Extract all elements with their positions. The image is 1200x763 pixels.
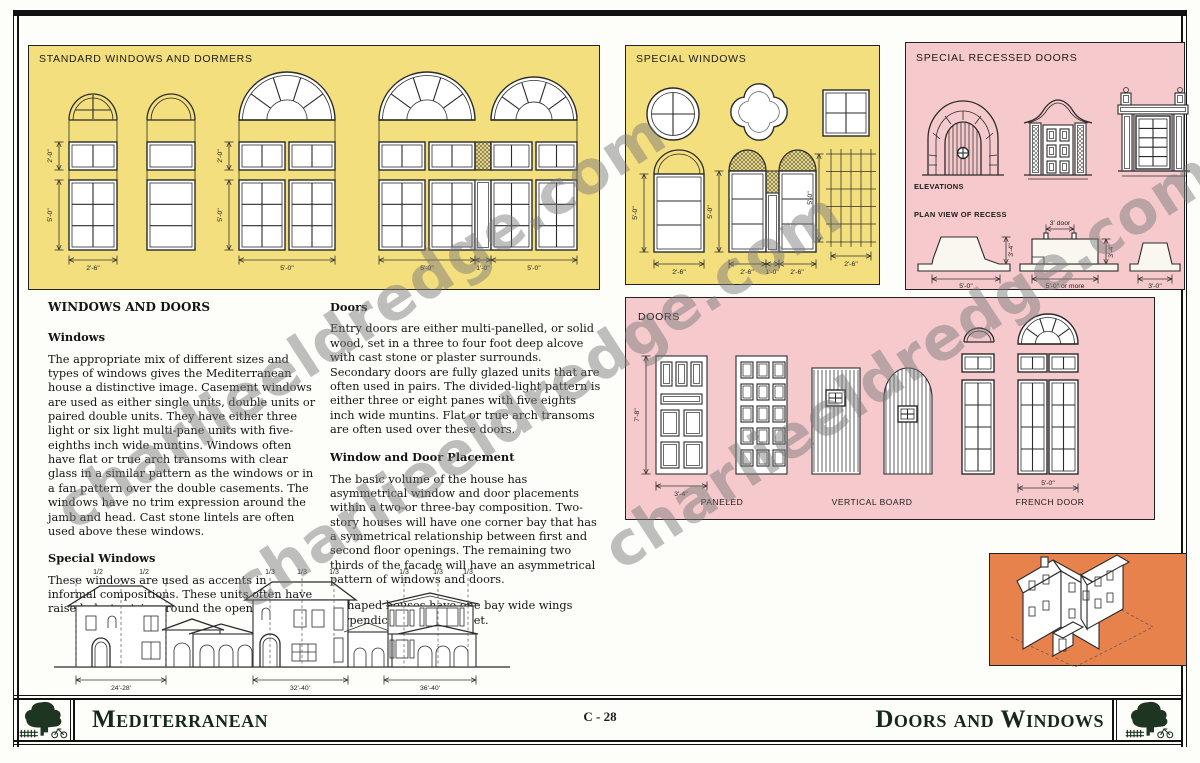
footer-rule [14,695,1182,696]
dim-label: 5'-0" [217,208,224,222]
dim-label: 5'-0" [707,205,714,219]
dim-label: 3' door [1050,220,1071,227]
footer-rule [14,744,1182,745]
page-title: Doors and Windows [875,700,1104,740]
quatrefoil-window [731,84,787,140]
dim-label: 2'-6" [740,269,754,276]
panel-title: SPECIAL WINDOWS [636,53,746,65]
pattern-book-page: STANDARD WINDOWS AND DORMERS 2'-0" 5'-0"… [0,0,1200,763]
rustic-arch-door-elevation [922,101,1004,175]
bay-fraction: 1/3 [265,569,275,576]
bay-fraction: 1/3 [463,569,473,576]
windows-heading: Windows [48,330,316,344]
bay-fraction: 1/2 [139,569,149,576]
bay-fraction: 1/3 [399,569,409,576]
double-french-door: 5'-0" [1018,314,1078,493]
dim-label: 3'-0" [1148,283,1162,290]
axonometric-house-drawing [995,515,1175,667]
page-top-rule [14,10,1186,16]
doors-paragraph: Entry doors are either multi-panelled, o… [330,322,604,437]
dim-label: 2'-6" [86,265,100,272]
width-dim: 36'-40' [420,685,440,692]
dim-label: 2'-6" [672,269,686,276]
arched-three-light-window: 5'-0" 2'-6" [632,150,704,276]
elevations-label: ELEVATIONS [914,182,964,191]
dim-label: 5'-0" or more [1046,283,1085,290]
vertical-board-door [812,368,860,474]
article-heading: WINDOWS AND DOORS [48,300,316,315]
facade-elevations-diagram: 1/2 1/2 24'-28' [48,562,518,694]
bay-fraction: 1/3 [297,569,307,576]
window-fan-double-casement: 2'-0" 5'-0" 5'-0" [217,72,335,272]
plan-view-label: PLAN VIEW OF RECESS [914,210,1007,219]
dim-label: 5'-0" [280,265,294,272]
dim-label: 5'-0" [959,283,973,290]
dim-label: 5'-0" [632,206,639,220]
doors-panel: DOORS 7'-8" 3'-4" PANELED [625,297,1155,520]
special-recessed-doors-panel: SPECIAL RECESSED DOORS [905,42,1185,290]
dim-label: 2'-6" [790,269,804,276]
page-left-frame [13,10,19,747]
paneled-label: PANELED [701,497,744,507]
panel-title: DOORS [638,311,680,323]
dim-label: 7'-8" [634,408,641,422]
windows-paragraph: The appropriate mix of different sizes a… [48,353,316,539]
french-door-label: FRENCH DOOR [1016,497,1085,507]
window-arched-three-light: 2'-0" 5'-0" 2'-6" [47,94,117,272]
standard-windows-diagram: STANDARD WINDOWS AND DORMERS 2'-0" 5'-0"… [29,46,599,289]
recessed-doors-diagram: SPECIAL RECESSED DOORS [906,43,1184,289]
dim-label: 5'-0" [807,191,814,205]
bay-fraction: 1/3 [433,569,443,576]
recess-plan-narrow: 3'-0" [1130,243,1180,290]
special-windows-panel: SPECIAL WINDOWS 5'-0" [625,45,880,285]
width-dim: 32'-40' [290,685,310,692]
square-four-pane-window [823,90,869,136]
recess-plan-splayed: 3'-4" 5'-0" [918,237,1015,290]
panel-title: STANDARD WINDOWS AND DORMERS [39,53,253,65]
tree-logo-icon [1120,699,1178,739]
dim-label: 5'-0" [1041,480,1055,487]
dim-label: 5'-0" [527,265,541,272]
vertical-board-label: VERTICAL BOARD [832,497,913,507]
classical-surround-door-elevation [1118,88,1190,177]
dim-label: 5'-0" [420,265,434,272]
dim-label: 2'-0" [217,149,224,163]
standard-windows-panel: STANDARD WINDOWS AND DORMERS 2'-0" 5'-0"… [28,45,600,290]
placement-heading: Window and Door Placement [330,450,604,464]
six-panel-door: 7'-8" 3'-4" [634,356,707,498]
dim-label: 3'-4" [1108,244,1115,258]
recess-plan-wide: 3' door 3'-4" 5'-0" or more [1020,220,1118,290]
single-french-door [962,328,994,474]
dim-label: 2'-0" [47,149,54,163]
footer-rule [14,740,1182,742]
window-arched-plain [147,94,195,250]
publisher-logo-right [1119,698,1179,740]
lattice-window: 5'-0" 2'-6" [807,149,876,268]
dim-label: 3'-4" [674,491,688,498]
dim-label: 3'-4" [1008,243,1015,257]
dim-label: 1'-0" [765,269,779,276]
doors-diagram: DOORS 7'-8" 3'-4" PANELED [626,298,1154,519]
dim-label: 1'-0" [476,265,490,272]
bay-fraction: 1/3 [329,569,339,576]
round-window [647,88,699,140]
paired-arched-windows: 5'-0" 2'-6" 1'-0" 2'-6" [707,150,816,276]
doors-heading: Doors [330,300,604,314]
special-windows-diagram: SPECIAL WINDOWS 5'-0" [626,46,879,284]
scroll-pediment-door-elevation [1024,100,1092,179]
dim-label: 2'-6" [844,261,858,268]
window-paired-fan-casements: 5'-0" 1'-0" 5'-0" [379,72,577,272]
fifteen-panel-door [736,356,787,474]
dim-label: 5'-0" [47,208,54,222]
footer-divider [1116,698,1117,740]
panel-title: SPECIAL RECESSED DOORS [916,52,1077,64]
width-dim: 24'-28' [111,685,131,692]
house-elevation-stepped: 1/3 1/3 1/3 36'-40' [382,569,478,692]
footer-divider [1112,698,1114,740]
arched-vertical-board-door [884,368,932,474]
bay-fraction: 1/2 [93,569,103,576]
